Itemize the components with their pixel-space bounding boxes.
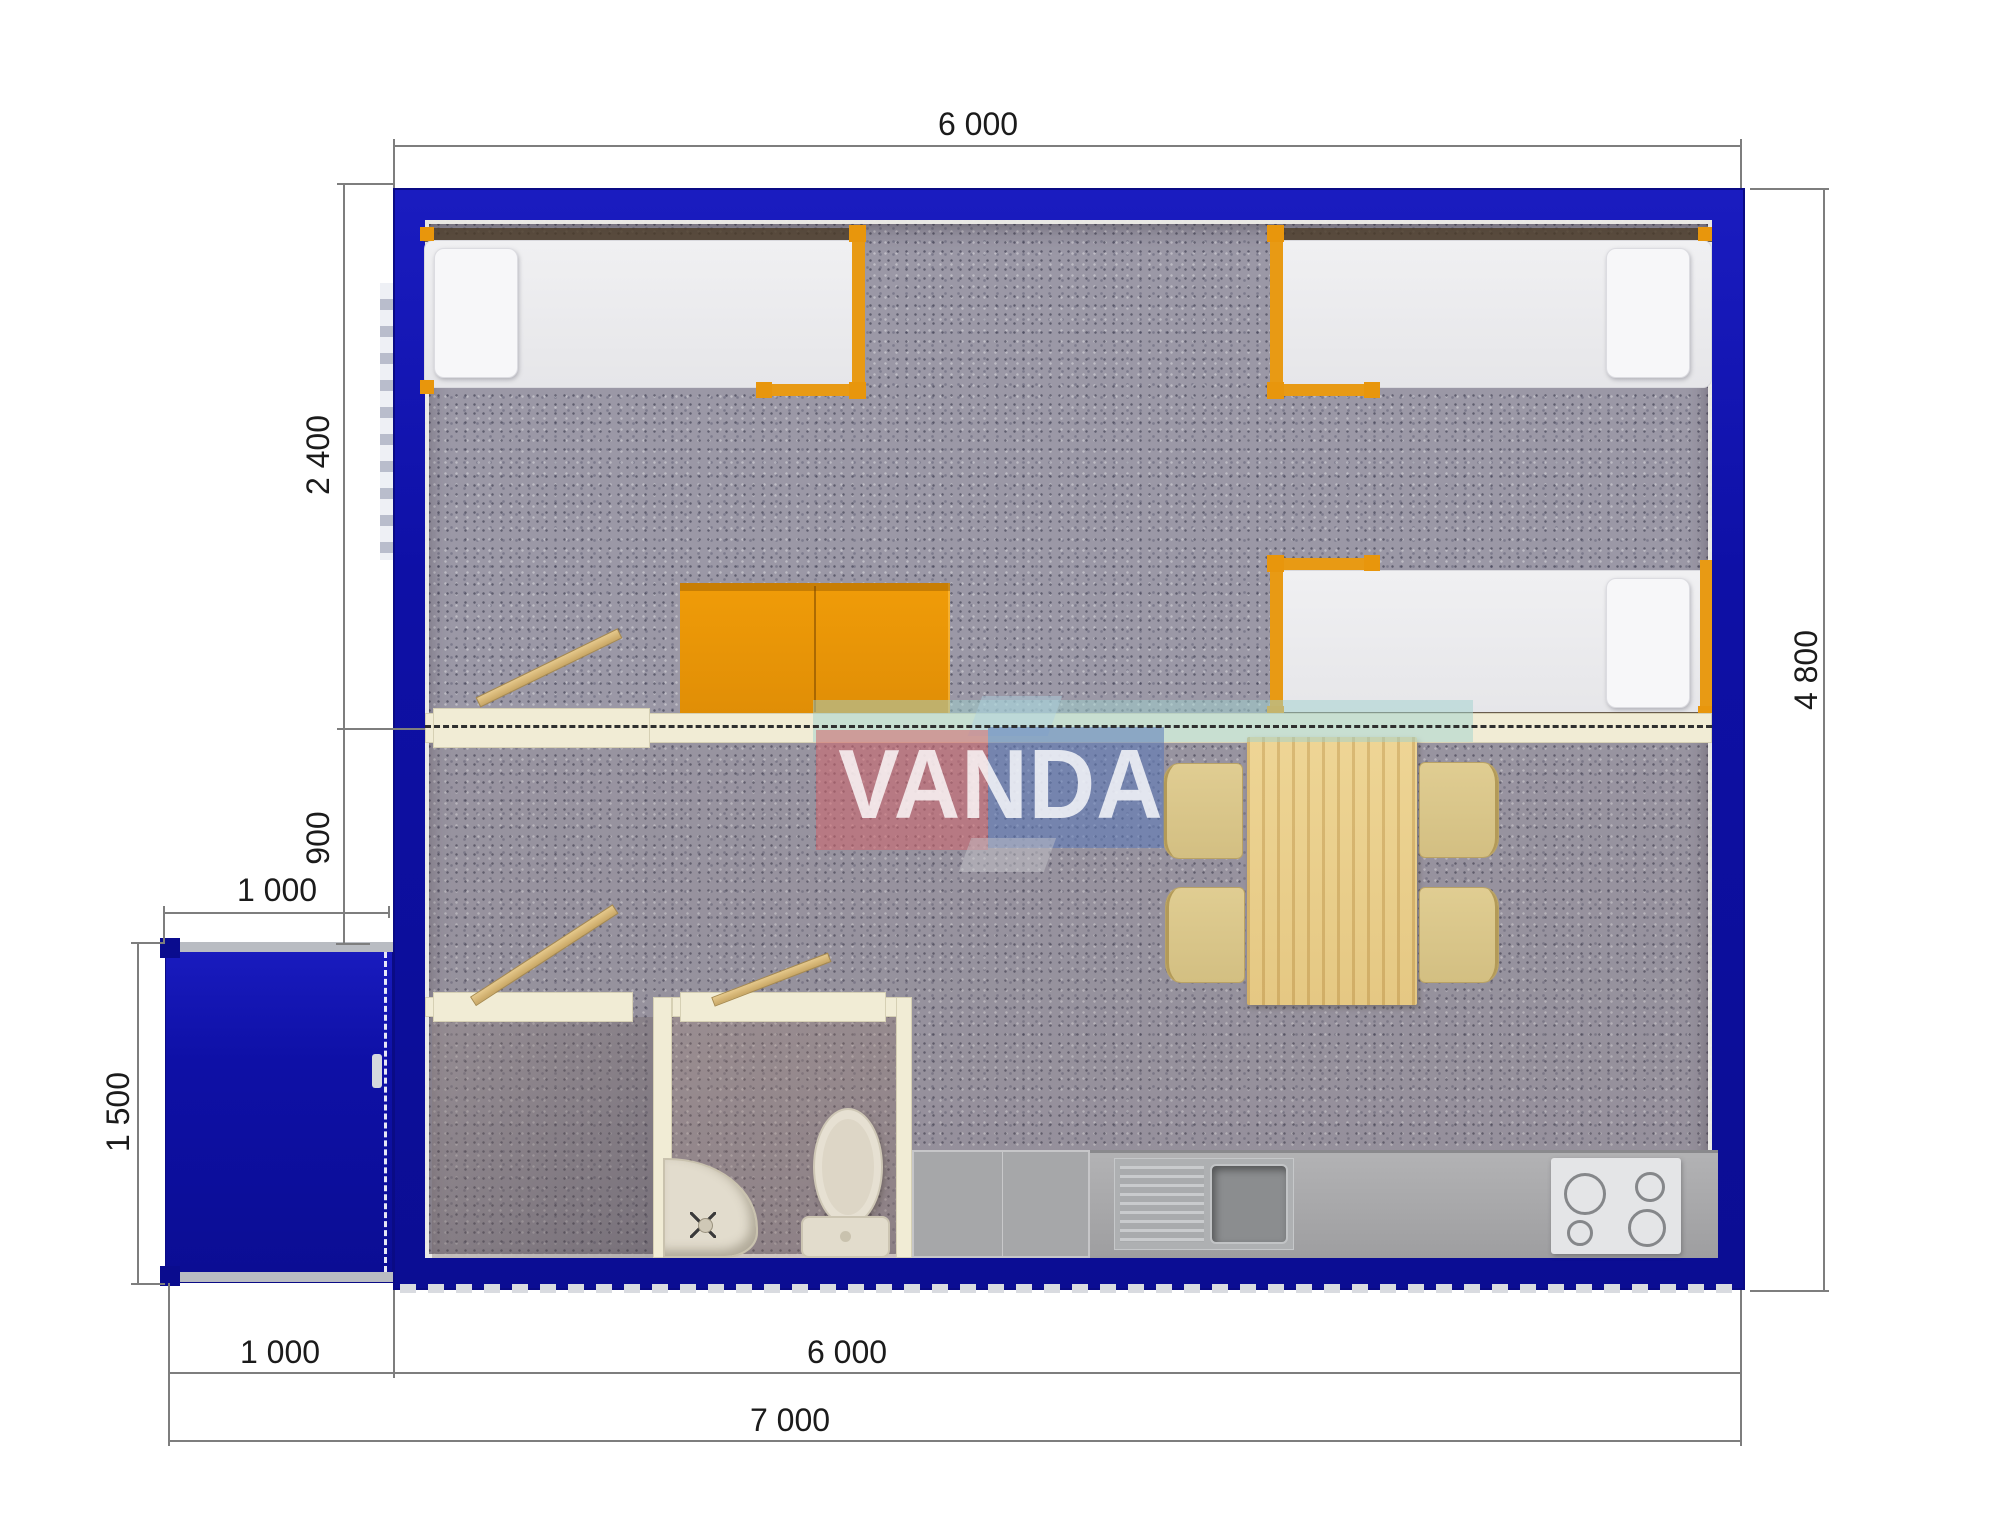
entrance-door-handle (372, 1054, 382, 1088)
dining-table (1247, 737, 1417, 1005)
dim-extension (163, 906, 165, 942)
kitchen-cabinet-left (912, 1150, 1090, 1258)
dim-extension (337, 728, 425, 730)
bed-foot-rail (1270, 230, 1283, 394)
porch-step-bottom (165, 1272, 393, 1282)
dim-line-hall-depth (343, 728, 345, 943)
watermark-accent-bottom (959, 838, 1056, 872)
bed-corner-post (849, 382, 866, 399)
dim-label-hall-depth: 900 (300, 738, 336, 938)
partition-wall-thick-segment (433, 708, 650, 748)
bath-wall-top-left-thick (433, 992, 633, 1022)
bed-corner-post (420, 227, 434, 241)
dim-extension (388, 906, 390, 918)
dim-line-bottom-building (393, 1372, 1740, 1374)
dining-chair (1419, 762, 1499, 858)
dim-extension (131, 1283, 165, 1285)
dim-label-top-width: 6 000 (878, 106, 1078, 142)
dim-line-bedroom-depth (343, 183, 345, 728)
wardrobe-door-seam (814, 586, 816, 712)
dim-extension (168, 1283, 170, 1446)
dining-chair (1163, 763, 1243, 859)
dim-extension (1740, 1290, 1742, 1446)
bed-corner-post (1364, 555, 1380, 571)
bed-corner-post (1267, 225, 1284, 242)
bed-pillow (434, 248, 518, 378)
dim-label-bottom-porch: 1 000 (180, 1334, 380, 1370)
toilet-lid (822, 1119, 874, 1215)
dim-extension (337, 183, 393, 185)
bottom-exterior-trim (400, 1284, 1740, 1293)
porch (165, 942, 393, 1283)
dim-line-top-width (393, 145, 1740, 147)
dim-extension (336, 943, 370, 945)
dim-label-porch-depth: 1 500 (100, 1012, 136, 1212)
dim-label-bottom-total: 7 000 (690, 1402, 890, 1438)
sink-basin (1210, 1164, 1288, 1244)
bed-head-rail (1700, 560, 1712, 718)
bed-pillow (1606, 248, 1690, 378)
toilet-flush-button (840, 1231, 851, 1242)
dim-label-bedroom-depth: 2 400 (300, 355, 336, 555)
bed-corner-post (1364, 382, 1380, 398)
basin-knob (698, 1218, 713, 1233)
stove-burner (1567, 1220, 1593, 1246)
watermark-logo-text: VANDA (838, 728, 1158, 840)
dim-line-porch-depth (137, 942, 139, 1283)
stove-burner (1628, 1209, 1666, 1247)
bed-corner-post (1267, 555, 1284, 572)
kitchen-cabinet-seam (1002, 1152, 1003, 1256)
bed-foot-rail (1270, 560, 1283, 718)
stove-burner (1635, 1172, 1665, 1202)
dim-line-bottom-porch (168, 1372, 393, 1374)
bed-corner-post (1698, 227, 1712, 241)
wc-right-wall (896, 997, 912, 1258)
dim-extension (393, 1290, 395, 1378)
bed-pillow (1606, 578, 1690, 708)
bed-corner-post (1267, 382, 1284, 399)
dim-extension (1750, 1290, 1829, 1292)
bed-side-rail (1272, 384, 1370, 396)
entrance-door-dashes (384, 952, 387, 1272)
dim-extension (1750, 188, 1829, 190)
dining-chair (1419, 887, 1499, 983)
dim-label-right-height: 4 800 (1788, 570, 1824, 770)
stove-burner (1564, 1173, 1606, 1215)
dim-line-bottom-total (168, 1440, 1740, 1442)
shower-room-floor (432, 1017, 653, 1258)
floor-plan-canvas: VANDA 6 000 4 800 2 400 900 1 000 1 500 … (0, 0, 2000, 1537)
dim-label-porch-width: 1 000 (177, 872, 377, 908)
window-left-wall (380, 283, 393, 560)
dining-chair (1165, 887, 1245, 983)
bed-corner-post (756, 382, 772, 398)
dim-extension (1740, 139, 1742, 188)
bed-corner-post (849, 225, 866, 242)
bed-side-rail (1272, 558, 1370, 570)
dim-label-bottom-building: 6 000 (747, 1334, 947, 1370)
bed-foot-rail (852, 230, 865, 394)
sink-drainboard (1120, 1166, 1204, 1242)
dim-line-porch-width (163, 912, 390, 914)
dim-extension (393, 139, 395, 188)
partition-centerline-dashes (425, 725, 1712, 728)
bed-corner-post (420, 380, 434, 394)
dim-extension (131, 942, 165, 944)
